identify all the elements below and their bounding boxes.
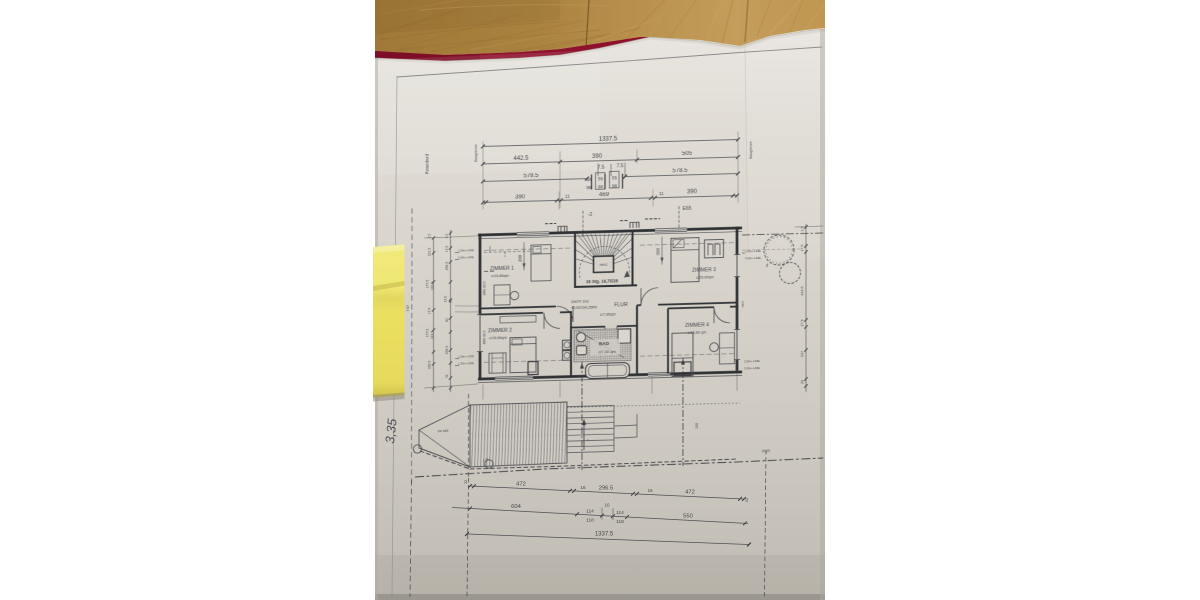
- svg-text:Rosenbord: Rosenbord: [425, 153, 430, 174]
- svg-text:296.5: 296.5: [599, 485, 614, 491]
- svg-text:-2: -2: [588, 212, 593, 218]
- svg-text:DKFF DG: DKFF DG: [571, 299, 589, 304]
- svg-text:80: 80: [445, 318, 449, 322]
- svg-text:118: 118: [616, 519, 624, 525]
- svg-text:469: 469: [599, 192, 610, 198]
- svg-text:7.5: 7.5: [617, 163, 624, 169]
- svg-text:100: 100: [695, 423, 699, 429]
- svg-text:82: 82: [449, 299, 453, 303]
- svg-text:16: 16: [647, 488, 653, 493]
- svg-text:259.5: 259.5: [445, 346, 449, 355]
- svg-text:1337.5: 1337.5: [599, 136, 618, 143]
- svg-text:55: 55: [586, 177, 592, 182]
- svg-text:33: 33: [801, 380, 805, 384]
- svg-text:578.5: 578.5: [672, 168, 688, 174]
- svg-text:A: A: [586, 439, 590, 441]
- svg-text:505: 505: [682, 151, 693, 157]
- svg-text:10: 10: [604, 502, 610, 507]
- svg-text:55: 55: [612, 175, 618, 180]
- svg-text:98: 98: [612, 183, 618, 188]
- svg-text:1,30m–LINIE: 1,30m–LINIE: [458, 361, 474, 365]
- svg-text:ZIMMER 4: ZIMMER 4: [685, 322, 709, 329]
- svg-text:11: 11: [659, 191, 664, 196]
- svg-text:390: 390: [687, 189, 698, 195]
- svg-text:151.5: 151.5: [428, 248, 432, 257]
- svg-text:3,35: 3,35: [382, 417, 400, 444]
- svg-text:550: 550: [683, 513, 693, 519]
- svg-text:163.5: 163.5: [431, 282, 435, 291]
- svg-text:472: 472: [685, 489, 695, 495]
- svg-text:FLUR: FLUR: [614, 302, 628, 308]
- svg-text:c/15,56qm: c/15,56qm: [489, 336, 507, 340]
- svg-text:zur wht: zur wht: [438, 429, 449, 433]
- svg-text:7.5: 7.5: [598, 165, 605, 171]
- svg-text:Baugrenze: Baugrenze: [474, 144, 478, 161]
- svg-text:2.5: 2.5: [445, 234, 449, 239]
- svg-text:c/7,30 qm: c/7,30 qm: [598, 349, 616, 354]
- svg-text:98: 98: [586, 185, 592, 190]
- svg-text:2,00m–LINIE: 2,00m–LINIE: [744, 359, 760, 363]
- svg-text:1,00m–LINIE: 1,00m–LINIE: [458, 354, 474, 358]
- svg-text:16 Stg. 16,75/28: 16 Stg. 16,75/28: [586, 278, 619, 284]
- svg-text:c/15,86qm: c/15,86qm: [491, 274, 509, 278]
- svg-text:17.5: 17.5: [428, 308, 432, 315]
- svg-text:1337.5: 1337.5: [595, 532, 614, 538]
- svg-text:Baugrenze: Baugrenze: [749, 141, 753, 158]
- svg-text:BRH 62.5: BRH 62.5: [483, 281, 487, 295]
- svg-text:+3,00/234/,25RN: +3,00/234/,25RN: [571, 305, 597, 310]
- svg-text:16: 16: [580, 485, 586, 490]
- svg-text:604: 604: [511, 504, 521, 510]
- svg-text:163.5: 163.5: [431, 331, 435, 340]
- svg-text:11: 11: [565, 194, 570, 199]
- svg-text:98: 98: [598, 184, 604, 189]
- svg-text:259.5: 259.5: [445, 262, 449, 271]
- svg-text:390: 390: [515, 194, 526, 200]
- svg-text:33: 33: [745, 498, 749, 502]
- svg-text:390: 390: [592, 154, 603, 160]
- svg-text:33: 33: [464, 480, 468, 484]
- svg-text:2.5: 2.5: [801, 226, 805, 231]
- svg-text:165.5: 165.5: [428, 361, 432, 370]
- svg-text:3,30m–LINIE: 3,30m–LINIE: [458, 248, 474, 252]
- svg-text:E65: E65: [683, 206, 692, 212]
- svg-text:17.5: 17.5: [801, 244, 805, 251]
- svg-text:3,00m–LINIE: 3,00m–LINIE: [745, 256, 761, 260]
- svg-text:51: 51: [445, 374, 449, 378]
- svg-text:3,30m–LINIE: 3,30m–LINIE: [745, 249, 761, 253]
- svg-text:118: 118: [586, 517, 594, 523]
- svg-text:12.0: 12.0: [444, 296, 448, 303]
- svg-text:ABHZ: ABHZ: [599, 263, 607, 267]
- svg-text:177.5: 177.5: [426, 329, 430, 338]
- svg-text:434.5: 434.5: [801, 286, 805, 296]
- svg-text:17.5: 17.5: [801, 319, 805, 326]
- svg-text:17.5: 17.5: [445, 246, 449, 253]
- svg-text:114: 114: [586, 508, 594, 514]
- svg-text:200: 200: [518, 254, 523, 262]
- svg-text:BAD: BAD: [599, 341, 610, 347]
- svg-text:177.5: 177.5: [426, 280, 430, 289]
- svg-text:2,30m–LINIE: 2,30m–LINIE: [744, 366, 760, 370]
- svg-text:114: 114: [616, 510, 624, 516]
- svg-text:747: 747: [405, 304, 410, 312]
- svg-text:ZIMMER 3: ZIMMER 3: [692, 267, 716, 274]
- svg-text:55: 55: [598, 176, 604, 181]
- svg-text:BRH 62.5: BRH 62.5: [483, 330, 487, 344]
- svg-text:3,00m–LINIE: 3,00m–LINIE: [458, 255, 474, 259]
- svg-text:578.5: 578.5: [523, 173, 539, 179]
- svg-text:F8ÜT: F8ÜT: [741, 300, 745, 307]
- svg-text:c/7,85qm: c/7,85qm: [600, 312, 616, 316]
- svg-text:ZIMMER 2: ZIMMER 2: [488, 328, 512, 335]
- svg-text:442.5: 442.5: [513, 156, 529, 162]
- svg-text:200: 200: [656, 247, 661, 255]
- svg-text:247: 247: [801, 351, 805, 357]
- svg-text:472: 472: [516, 481, 526, 487]
